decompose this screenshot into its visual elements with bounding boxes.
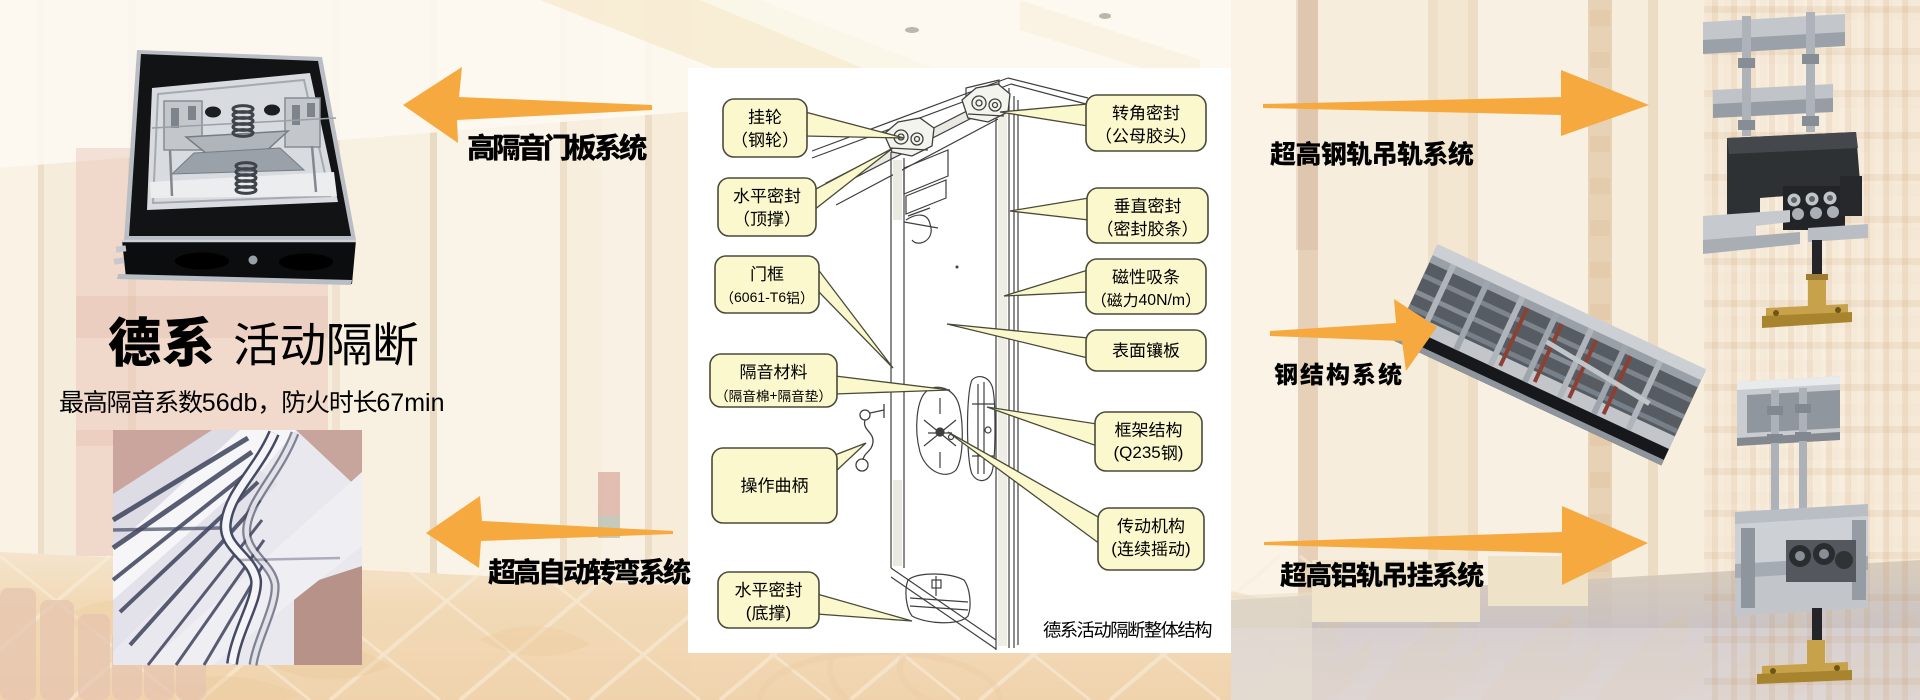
svg-text:): ) bbox=[786, 603, 792, 622]
svg-text:+: + bbox=[770, 388, 778, 403]
svg-text:40N/m: 40N/m bbox=[1139, 292, 1186, 309]
svg-text:6061-T6: 6061-T6 bbox=[734, 289, 786, 305]
svg-text:(Q235: (Q235 bbox=[1114, 443, 1161, 462]
svg-text:56db: 56db bbox=[202, 389, 258, 417]
svg-text:): ) bbox=[1185, 539, 1191, 558]
svg-text:67min: 67min bbox=[376, 389, 444, 417]
svg-text:(: ( bbox=[1111, 539, 1117, 558]
svg-text:(: ( bbox=[746, 603, 752, 622]
svg-text:): ) bbox=[1178, 443, 1184, 462]
